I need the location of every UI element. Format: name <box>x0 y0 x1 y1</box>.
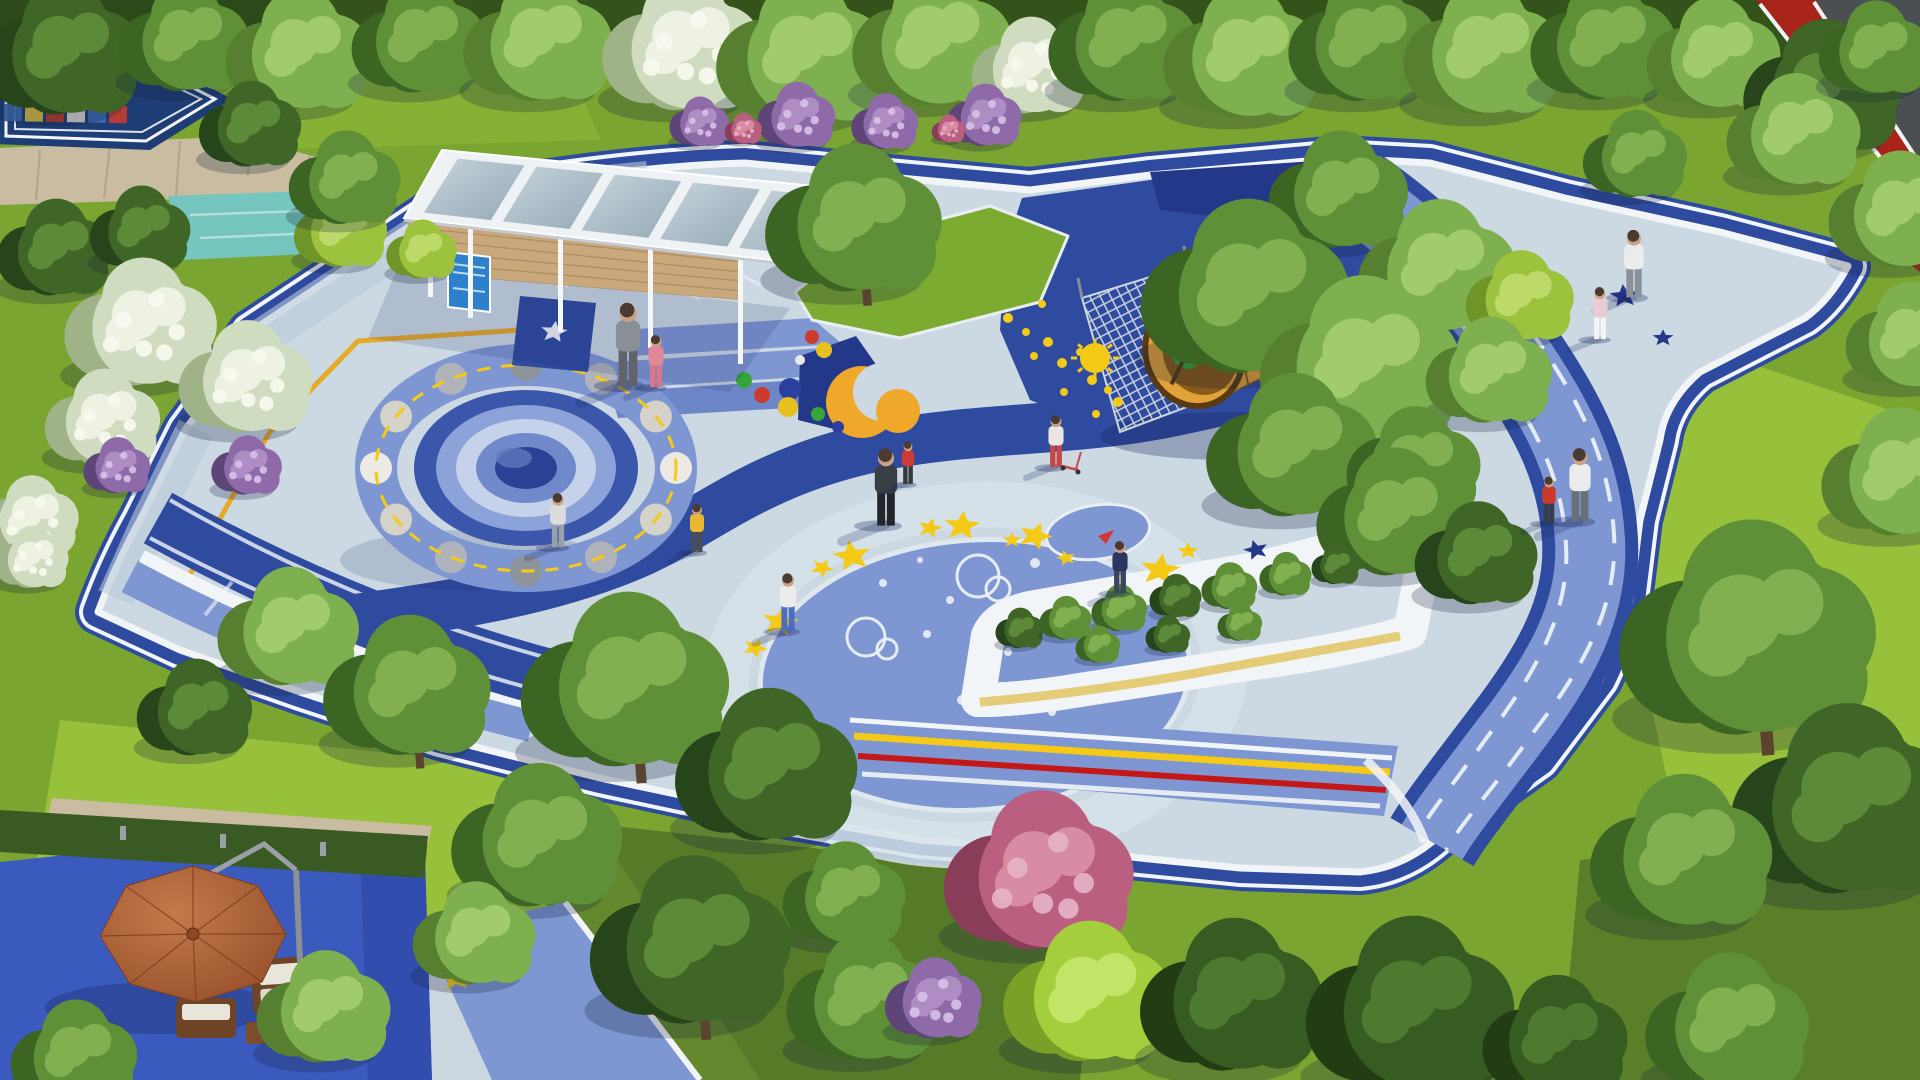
tree-canopy <box>1446 41 1483 78</box>
tree-canopy <box>45 1047 75 1077</box>
tree-canopy <box>724 756 767 799</box>
tree-canopy <box>698 894 750 946</box>
umbrella-post <box>296 870 300 962</box>
playground-rendering <box>0 0 1920 1080</box>
blossom <box>83 410 95 422</box>
yellow-mini-dot <box>1057 358 1067 368</box>
person-leg <box>887 490 895 525</box>
tree-canopy <box>1298 406 1342 450</box>
person-torso <box>690 514 704 532</box>
tree-canopy <box>1853 747 1912 806</box>
person-leg <box>657 363 662 387</box>
person-leg <box>619 348 628 386</box>
blossom <box>947 133 951 137</box>
tree-canopy <box>543 5 581 43</box>
person-leg <box>692 530 697 552</box>
tree-canopy <box>1106 605 1119 618</box>
tree-canopy <box>303 16 340 53</box>
tree-canopy <box>189 7 223 41</box>
play-dot <box>778 397 798 417</box>
blossom <box>13 564 21 572</box>
tree-canopy <box>497 827 537 867</box>
tree-canopy <box>1100 634 1112 646</box>
tree-canopy <box>199 681 229 711</box>
play-dot <box>795 355 805 365</box>
person-leg <box>1544 502 1549 523</box>
person-torso <box>1542 486 1555 503</box>
person-leg <box>1057 443 1062 467</box>
blossom <box>48 517 58 527</box>
scooter-wheel <box>1061 466 1066 471</box>
person-torso <box>1048 426 1063 445</box>
tree-canopy <box>1448 547 1477 576</box>
person-hair <box>1115 541 1124 550</box>
person-leg <box>1635 267 1642 298</box>
blossom <box>108 394 120 406</box>
tree-canopy <box>293 1000 325 1032</box>
post <box>468 218 473 318</box>
tree-canopy <box>1273 572 1285 584</box>
tree-canopy <box>293 594 329 630</box>
tree-canopy <box>1443 230 1484 271</box>
blossom <box>29 566 37 574</box>
blossom <box>883 129 890 136</box>
tree-canopy <box>1067 606 1080 619</box>
tree-canopy <box>79 1024 112 1057</box>
tree-canopy <box>1368 5 1406 43</box>
tree-canopy <box>1362 994 1411 1043</box>
blossom <box>124 419 136 431</box>
tree-canopy <box>1733 984 1775 1026</box>
person-leg <box>1121 569 1126 593</box>
tree-canopy <box>1177 584 1190 597</box>
tree-canopy <box>424 6 459 41</box>
blossom <box>951 999 961 1009</box>
blossom <box>39 568 47 576</box>
tree-canopy <box>424 233 442 251</box>
person-torso <box>1569 464 1590 491</box>
tree-canopy <box>1021 617 1033 629</box>
tree-canopy <box>503 32 538 67</box>
blossom <box>656 33 673 50</box>
bollard <box>320 842 326 856</box>
blossom <box>952 134 956 138</box>
blossom <box>1001 76 1013 88</box>
blossom <box>148 291 164 307</box>
person-leg <box>559 522 565 547</box>
white-dot <box>917 557 923 563</box>
tree-canopy <box>1763 123 1795 155</box>
post <box>648 242 653 348</box>
blossom <box>1048 832 1068 852</box>
person-torso <box>616 320 640 351</box>
person-leg <box>698 530 703 552</box>
tree-canopy <box>1849 42 1875 68</box>
blossom <box>1035 42 1047 54</box>
blossom <box>897 122 904 129</box>
blossom <box>1010 58 1022 70</box>
tree-canopy <box>762 43 802 83</box>
person-leg <box>781 605 787 631</box>
tree-canopy <box>1128 5 1166 43</box>
blossom <box>750 129 754 133</box>
blossom <box>794 124 802 132</box>
yellow-mini-dot <box>1038 300 1046 308</box>
blossom <box>103 336 119 352</box>
tree-canopy <box>1197 277 1246 326</box>
blossom <box>972 110 980 118</box>
tree-canopy <box>1495 291 1521 317</box>
person-hair <box>1595 287 1604 296</box>
play-dot <box>779 378 801 400</box>
tree-canopy <box>1688 616 1749 677</box>
tree-canopy <box>1163 594 1175 606</box>
tree-canopy <box>1337 553 1349 565</box>
tree-canopy <box>1398 477 1437 516</box>
tree-canopy <box>644 931 692 979</box>
yellow-mini-dot <box>1092 410 1100 418</box>
person-leg <box>789 605 795 631</box>
person-leg <box>552 522 558 547</box>
tree-canopy <box>1242 612 1254 624</box>
blossom <box>260 466 268 474</box>
blossom <box>992 888 1012 908</box>
tree-canopy <box>226 119 250 143</box>
blossom <box>235 460 243 468</box>
tree-canopy <box>1719 22 1754 57</box>
white-dot <box>1030 558 1040 568</box>
tree-canopy <box>1639 130 1666 157</box>
person-leg <box>1601 315 1606 339</box>
person-leg <box>1581 488 1589 521</box>
white-dot <box>957 695 967 705</box>
blossom <box>115 312 131 328</box>
person-hair <box>620 303 635 318</box>
blossom <box>702 110 708 116</box>
tree-canopy <box>168 702 195 729</box>
blossom <box>254 476 262 484</box>
tree-canopy <box>479 905 511 937</box>
person-torso <box>1112 552 1127 571</box>
tree-canopy <box>1324 562 1335 573</box>
blossom <box>992 126 1000 134</box>
yellow-mini-dot <box>1043 337 1053 347</box>
yellow-mini-dot <box>1104 386 1112 394</box>
tree-canopy <box>1866 203 1899 236</box>
tree-canopy <box>816 887 845 916</box>
blossom <box>241 393 255 407</box>
tree-canopy <box>1879 22 1908 51</box>
blossom <box>212 389 226 403</box>
tree-canopy <box>254 101 280 127</box>
tree-canopy <box>413 647 456 690</box>
blossom <box>45 558 53 566</box>
tree-canopy <box>860 178 906 224</box>
blossom <box>737 126 741 130</box>
blossom <box>252 350 266 364</box>
tree-canopy <box>1287 562 1300 575</box>
person-hair <box>1544 477 1552 485</box>
blossom <box>966 122 974 130</box>
tree-canopy <box>59 221 89 251</box>
person-hair <box>782 573 792 583</box>
tree-canopy <box>1088 642 1099 653</box>
moon-ball <box>876 389 920 433</box>
blossom <box>804 126 812 134</box>
blossom <box>684 127 690 133</box>
bollard <box>220 834 226 848</box>
tree-canopy <box>1683 46 1715 78</box>
tree-canopy <box>1088 32 1123 67</box>
blossom <box>115 473 122 480</box>
blossom <box>1026 79 1038 91</box>
blossom <box>783 110 791 118</box>
tree-canopy <box>388 30 420 62</box>
tree-canopy <box>1253 239 1307 293</box>
person-hair <box>1627 230 1639 242</box>
blossom <box>136 340 152 356</box>
tree-canopy <box>1170 624 1182 636</box>
blossom <box>710 122 716 128</box>
blossom <box>745 121 749 125</box>
blossom <box>697 129 703 135</box>
tree-canopy <box>446 927 475 956</box>
tree-canopy <box>633 632 687 686</box>
blossom <box>811 116 819 124</box>
person-hair <box>692 504 701 513</box>
blossom <box>868 128 875 135</box>
person-hair <box>904 441 911 448</box>
tree-canopy <box>329 976 364 1011</box>
tree-canopy <box>895 31 933 69</box>
tree-canopy <box>1306 183 1339 216</box>
person-leg <box>1572 488 1580 521</box>
tree-canopy <box>154 31 185 62</box>
tree-canopy <box>1792 788 1846 842</box>
person-leg <box>1594 315 1599 339</box>
tree-canopy <box>1008 626 1019 637</box>
tree-canopy <box>1862 465 1898 501</box>
tree-canopy <box>849 865 881 897</box>
tree-canopy <box>1488 13 1529 54</box>
blossom <box>982 124 990 132</box>
post <box>558 230 563 332</box>
person-leg <box>629 348 638 386</box>
tree-canopy <box>1328 32 1363 67</box>
blossom <box>998 116 1006 124</box>
blossom <box>892 131 899 138</box>
tree-canopy <box>813 210 855 252</box>
blossom <box>643 59 660 76</box>
crater-highlight <box>496 448 532 468</box>
white-dot <box>923 630 931 638</box>
blossom <box>690 11 707 28</box>
tree-canopy <box>1053 616 1065 628</box>
tree-canopy <box>1206 44 1243 81</box>
person-hair <box>1573 448 1586 461</box>
blossom <box>800 99 808 107</box>
tree-canopy <box>827 990 863 1026</box>
tree-canopy <box>349 152 378 181</box>
blossom <box>777 122 785 130</box>
tree-canopy <box>1401 258 1438 295</box>
blossom <box>270 378 284 392</box>
blossom <box>677 63 694 80</box>
yellow-mini-dot <box>1003 313 1013 323</box>
blossom <box>988 100 996 108</box>
tree-canopy <box>1608 6 1645 43</box>
person-leg <box>903 465 907 484</box>
yellow-mini-dot <box>1113 397 1123 407</box>
tree-canopy <box>1569 33 1603 67</box>
tree-canopy <box>1418 956 1472 1010</box>
tree-canopy <box>1481 525 1513 557</box>
play-dot <box>832 421 844 433</box>
tree-canopy <box>1639 842 1682 885</box>
blossom <box>943 126 947 130</box>
tree-canopy <box>1880 329 1910 359</box>
blossom <box>742 133 746 137</box>
person-torso <box>550 505 566 525</box>
blossom <box>699 67 716 84</box>
tree-canopy <box>144 205 170 231</box>
play-dot <box>754 387 770 403</box>
tree-canopy <box>577 670 626 719</box>
scene-canvas <box>0 0 1920 1080</box>
tree-canopy <box>1048 984 1088 1024</box>
bench-cushion <box>182 1004 230 1020</box>
blossom <box>244 474 252 482</box>
yellow-mini-dot <box>1030 352 1038 360</box>
blossom <box>259 396 273 410</box>
tree-canopy <box>1252 437 1292 477</box>
tree-canopy <box>808 12 852 56</box>
tree-canopy <box>1189 986 1232 1029</box>
sun-core <box>1080 343 1110 373</box>
tree-canopy <box>264 43 298 77</box>
tree-canopy <box>1611 149 1636 174</box>
blossom <box>14 510 24 520</box>
tree-canopy <box>1344 158 1380 194</box>
play-dot <box>811 407 825 421</box>
tree-canopy <box>543 796 587 840</box>
blossom <box>6 525 16 535</box>
tree-canopy <box>319 172 345 198</box>
person-leg <box>650 363 655 387</box>
blossom <box>1007 858 1027 878</box>
tree-canopy <box>1368 314 1420 366</box>
person-hair <box>651 335 660 344</box>
tree-canopy <box>1494 341 1527 374</box>
tree-canopy <box>1357 505 1393 541</box>
post <box>738 254 743 364</box>
scooter-wheel <box>1076 470 1081 475</box>
tree-canopy <box>1688 809 1735 856</box>
blossom <box>124 475 131 482</box>
blossom <box>917 992 927 1002</box>
blossom <box>955 129 959 133</box>
blossom <box>169 324 185 340</box>
blossom <box>229 472 237 480</box>
blossom <box>747 134 751 138</box>
person-leg <box>1626 267 1633 298</box>
person-torso <box>648 346 663 365</box>
blossom <box>1033 893 1053 913</box>
blossom <box>689 118 695 124</box>
yellow-mini-dot <box>1022 328 1030 336</box>
play-dot <box>816 342 832 358</box>
tree-canopy <box>1521 1030 1555 1064</box>
tree-canopy <box>1231 573 1245 587</box>
blossom <box>156 344 172 360</box>
tree-canopy <box>1216 583 1229 596</box>
blossom <box>943 1012 953 1022</box>
person-torso <box>780 586 797 608</box>
tree-canopy <box>1158 632 1169 643</box>
person-leg <box>1050 443 1055 467</box>
person-leg <box>1549 502 1554 523</box>
tree-canopy <box>1230 620 1241 631</box>
tree-canopy <box>255 620 288 653</box>
person-leg <box>877 490 885 525</box>
tree-canopy <box>1524 271 1552 299</box>
tree-canopy <box>405 246 422 263</box>
blossom <box>888 108 895 115</box>
tree-canopy <box>28 242 55 269</box>
blossom <box>223 368 237 382</box>
tree-canopy <box>1560 1003 1597 1040</box>
person-leg <box>908 465 912 484</box>
tree-canopy <box>1460 364 1490 394</box>
person-torso <box>1592 298 1607 317</box>
blossom <box>129 466 136 473</box>
person-hair <box>553 493 563 503</box>
person-torso <box>902 450 914 466</box>
blossom <box>106 461 113 468</box>
blossom <box>930 1010 940 1020</box>
person-hair <box>878 448 892 462</box>
tree-canopy <box>1248 16 1289 57</box>
tree-canopy <box>1757 569 1823 635</box>
tree-canopy <box>1689 1014 1728 1053</box>
blossom <box>35 497 45 507</box>
tree-canopy <box>938 2 979 43</box>
blossom <box>950 122 954 126</box>
tree-canopy <box>26 41 63 78</box>
tree-canopy <box>1093 953 1136 996</box>
blossom <box>909 1007 919 1017</box>
blossom <box>874 117 881 124</box>
blossom <box>940 132 944 136</box>
tree-canopy <box>773 723 820 770</box>
blossom <box>938 979 948 989</box>
blossom <box>1058 898 1078 918</box>
tree-canopy <box>1238 953 1285 1000</box>
person-leg <box>1114 569 1119 593</box>
blossom <box>19 552 27 560</box>
blossom <box>705 130 711 136</box>
umbrella-knob <box>187 928 199 940</box>
blossom <box>734 132 738 136</box>
bollard <box>120 826 126 840</box>
tree-canopy <box>1799 99 1834 134</box>
yellow-mini-dot <box>1060 388 1068 396</box>
play-dot <box>805 330 819 344</box>
tree-canopy <box>1121 595 1135 609</box>
blossom <box>250 451 258 459</box>
person-torso <box>1624 244 1644 269</box>
white-dot <box>946 596 954 604</box>
